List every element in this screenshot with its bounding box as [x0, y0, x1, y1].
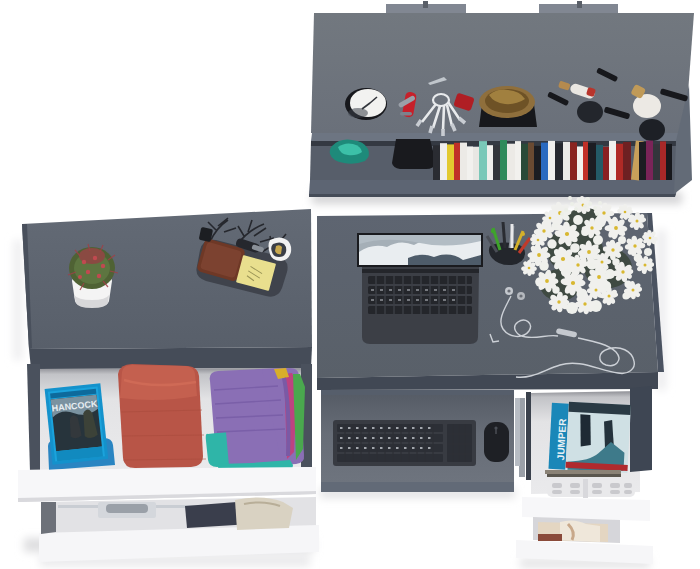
- svg-text:JUMPER: JUMPER: [555, 418, 568, 461]
